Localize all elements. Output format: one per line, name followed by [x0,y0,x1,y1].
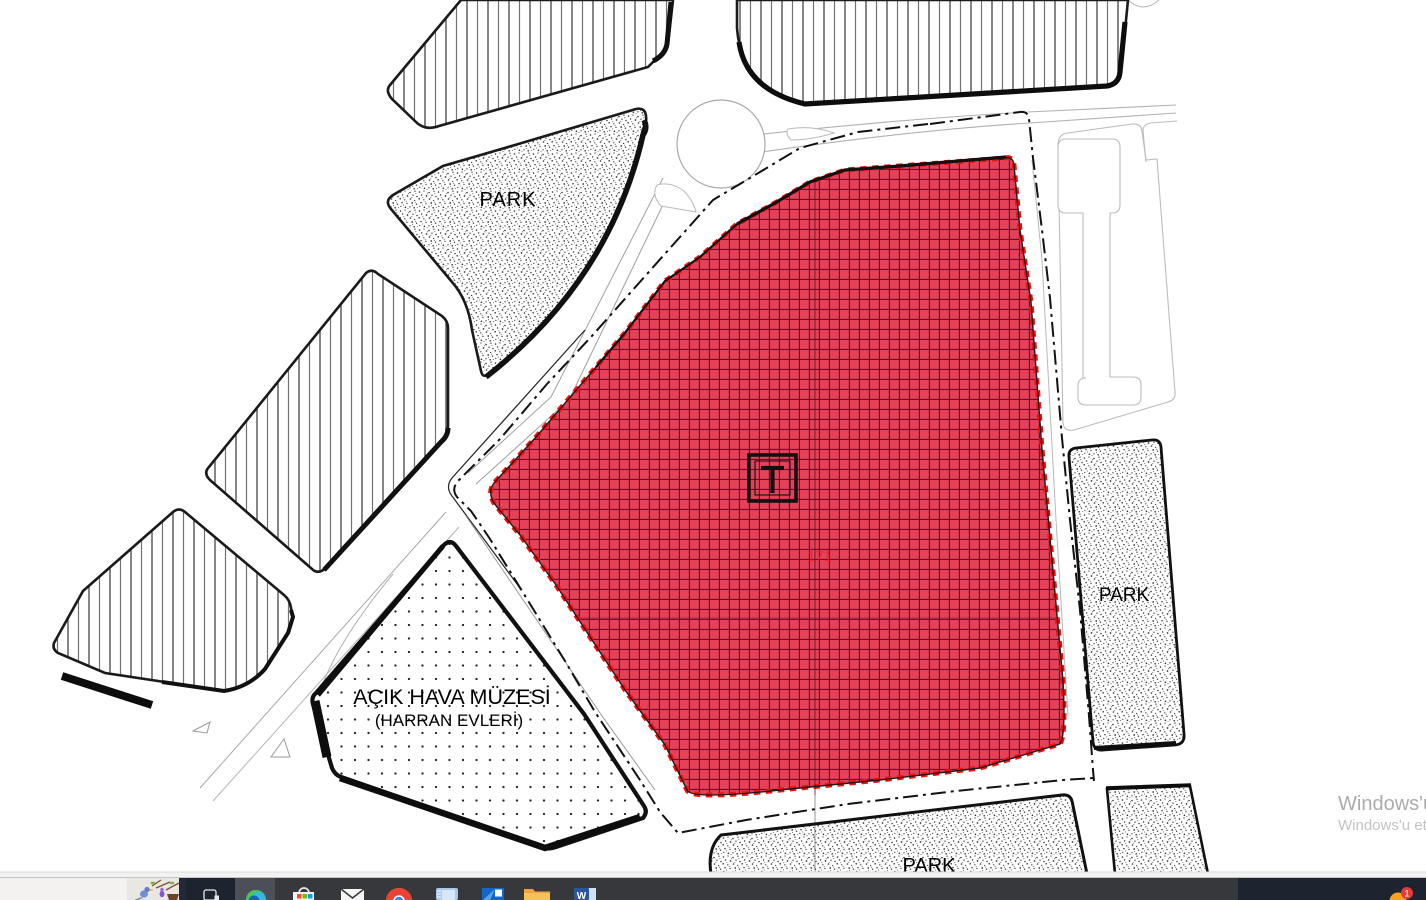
svg-text:Windows'u: Windows'u [1338,793,1426,815]
svg-text:W: W [577,891,587,900]
svg-text:AÇIK HAVA MÜZESİ: AÇIK HAVA MÜZESİ [353,685,551,709]
svg-text:PARK: PARK [1099,585,1150,606]
svg-text:PARK: PARK [480,189,537,211]
svg-text:1: 1 [1404,889,1409,899]
svg-text:(HARRAN EVLERİ): (HARRAN EVLERİ) [375,711,523,730]
svg-text:171: 171 [807,548,832,565]
svg-text:Windows'u etk: Windows'u etk [1338,817,1426,834]
